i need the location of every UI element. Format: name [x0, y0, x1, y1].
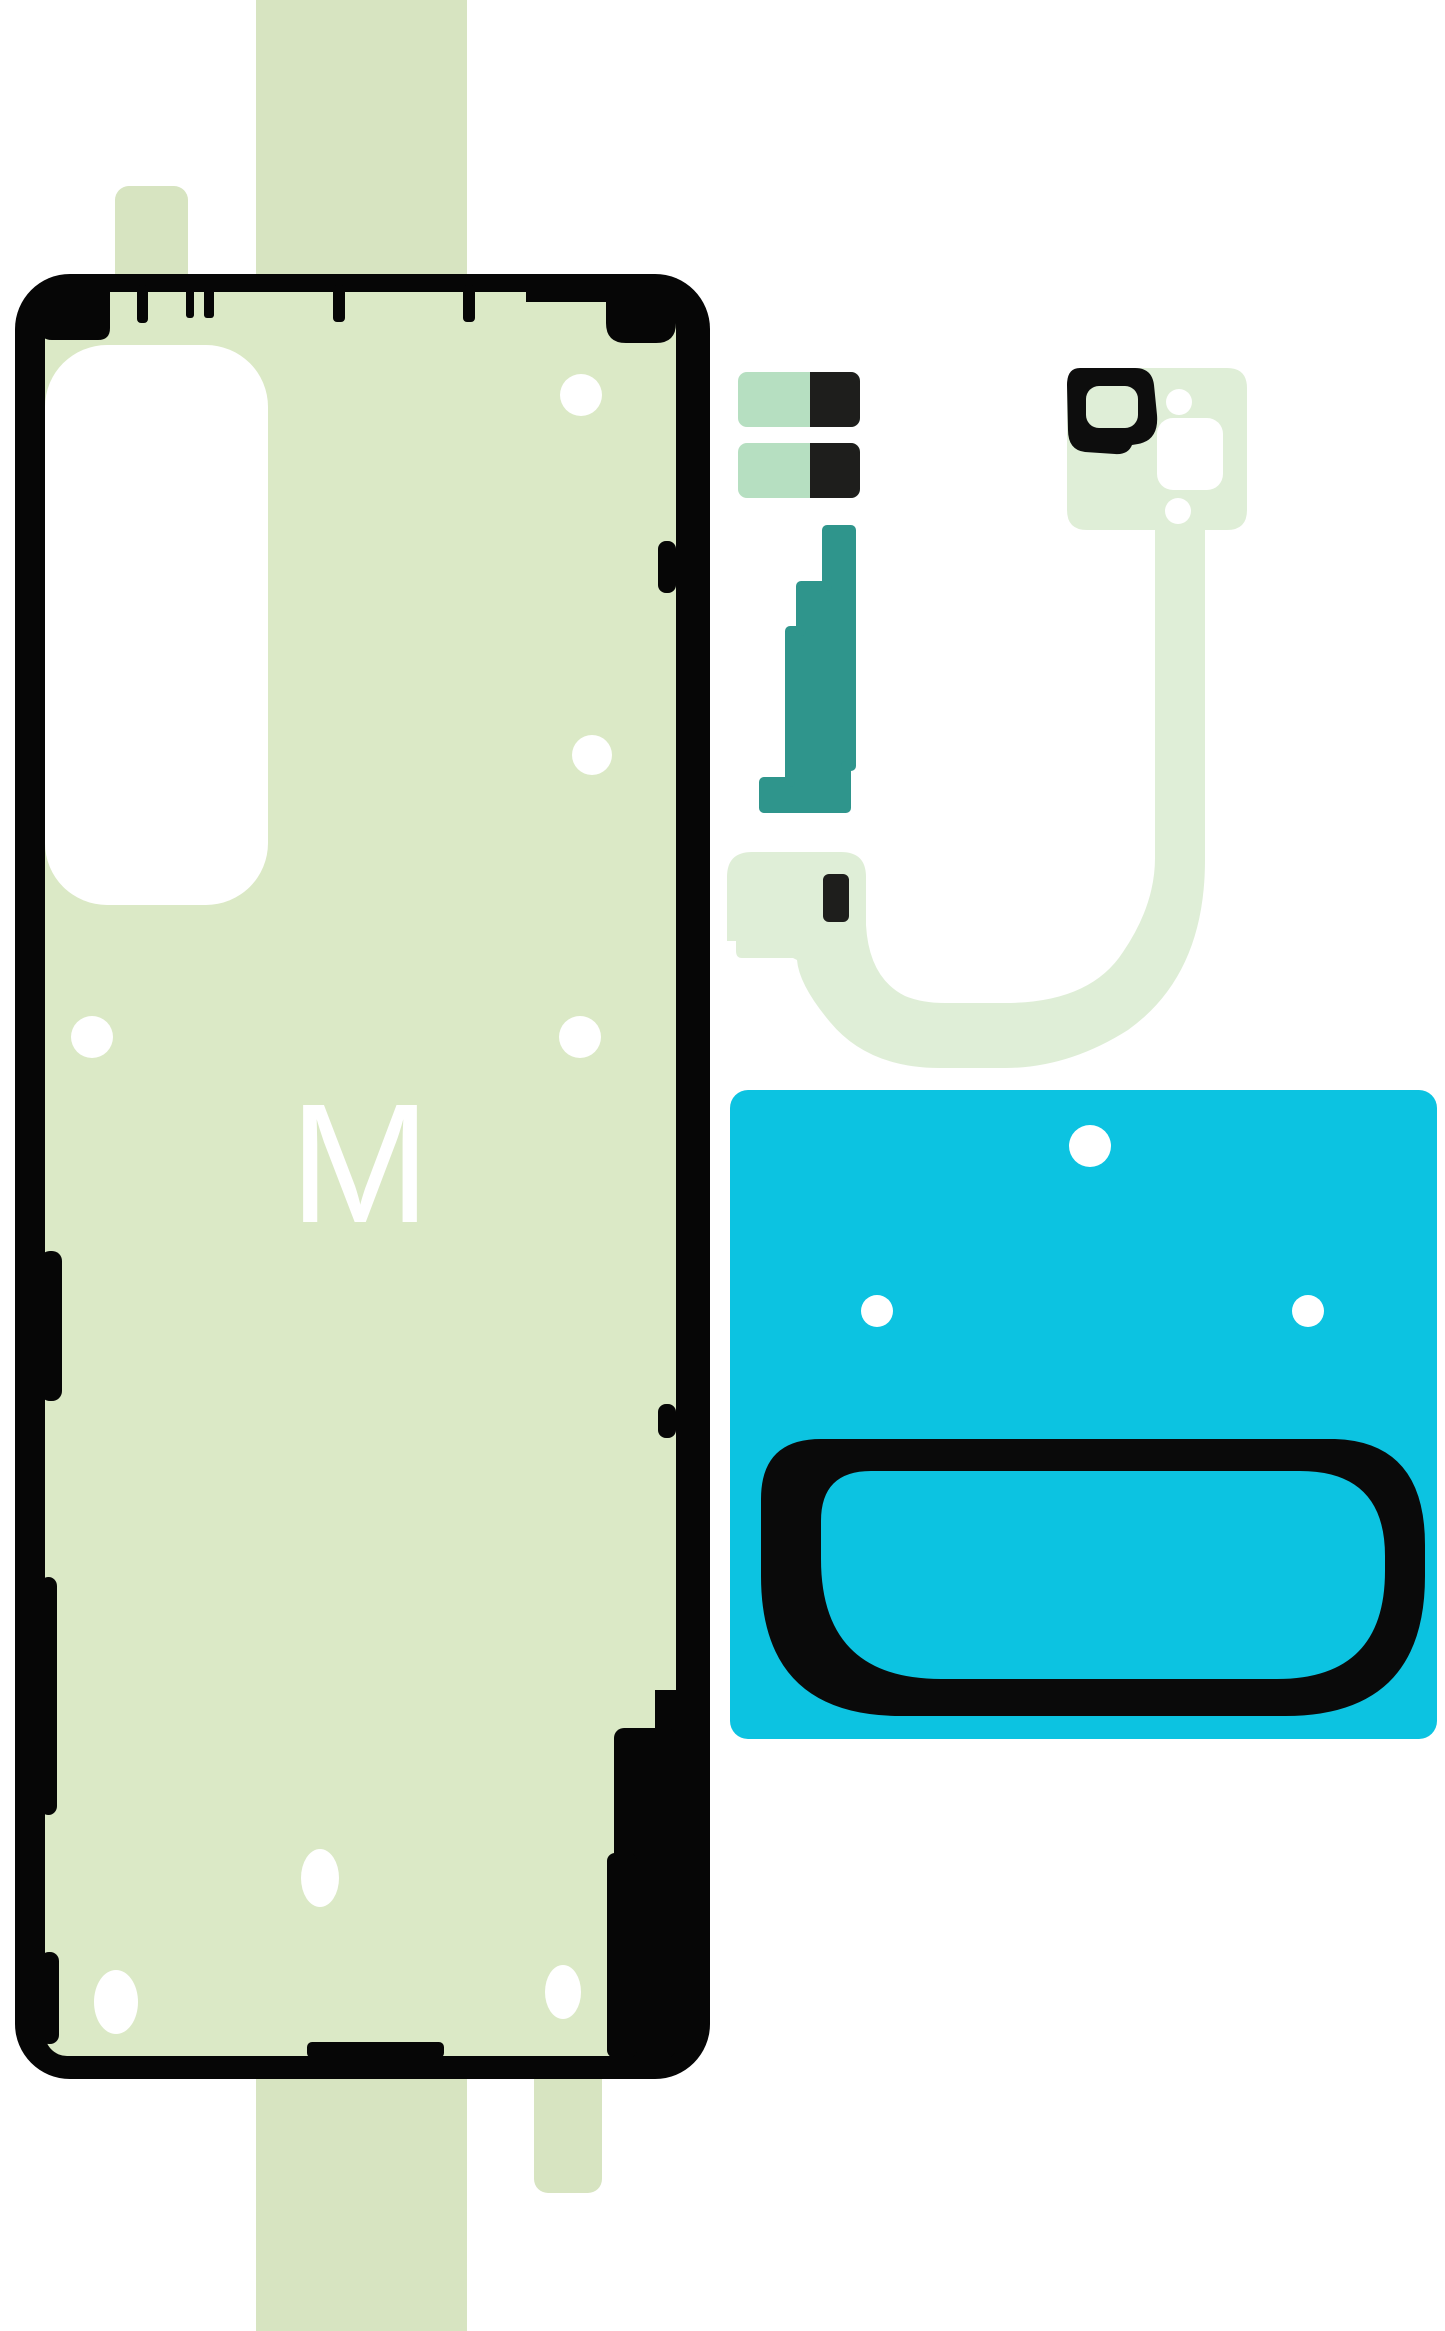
hole-bottom-center — [301, 1849, 339, 1907]
frame-tooth-4 — [333, 285, 345, 322]
frame-notch-bottom-right-c — [607, 1853, 637, 2058]
frame-shelf-right — [526, 285, 608, 302]
cyan-adhesive-pad — [730, 1090, 1437, 1739]
flex-hole-bottom — [1165, 498, 1191, 524]
hole-mid-right — [572, 735, 612, 775]
hole-top-right — [560, 374, 602, 416]
flex-notch-cutout — [1157, 418, 1223, 490]
frame-notch-bottom-center — [307, 2042, 444, 2058]
hole-mid-center — [559, 1016, 601, 1058]
hole-mid-left — [71, 1016, 113, 1058]
camera-surround-window — [1086, 386, 1138, 428]
flex-hole-top — [1166, 389, 1192, 415]
frame-tooth-1 — [137, 285, 148, 323]
chip-2-black-join — [810, 443, 832, 498]
hole-bottom-right — [545, 1965, 581, 2019]
adhesive-chip-2 — [738, 443, 860, 498]
adhesive-kit-canvas: M — [0, 0, 1445, 2331]
flex-slot-black — [823, 874, 849, 922]
cyan-hole-top — [1069, 1125, 1111, 1167]
frame-bump-right-1 — [658, 541, 676, 593]
frame-wiggle-left-bottom — [40, 1952, 59, 2044]
frame-notch-top-left — [40, 285, 110, 340]
frame-notch-left-mid — [40, 1251, 62, 1401]
sheet-size-marking: M — [289, 1069, 431, 1259]
camera-window-cutout — [45, 345, 268, 905]
hole-bottom-left — [94, 1970, 138, 2034]
cyan-hole-right — [1292, 1295, 1324, 1327]
adhesive-chip-1 — [738, 372, 860, 427]
frame-bump-right-2 — [658, 1404, 676, 1438]
frame-notch-top-right — [606, 285, 676, 343]
adhesive-kit-illustration: M — [0, 0, 1445, 2331]
frame-tooth-5 — [463, 285, 475, 322]
back-cover-adhesive-sheet: M — [15, 274, 710, 2079]
chip-1-black-join — [810, 372, 832, 427]
frame-tooth-3 — [204, 285, 214, 318]
cyan-hole-left — [861, 1295, 893, 1327]
frame-notch-left-lower — [40, 1577, 57, 1815]
frame-tooth-2 — [186, 285, 194, 318]
